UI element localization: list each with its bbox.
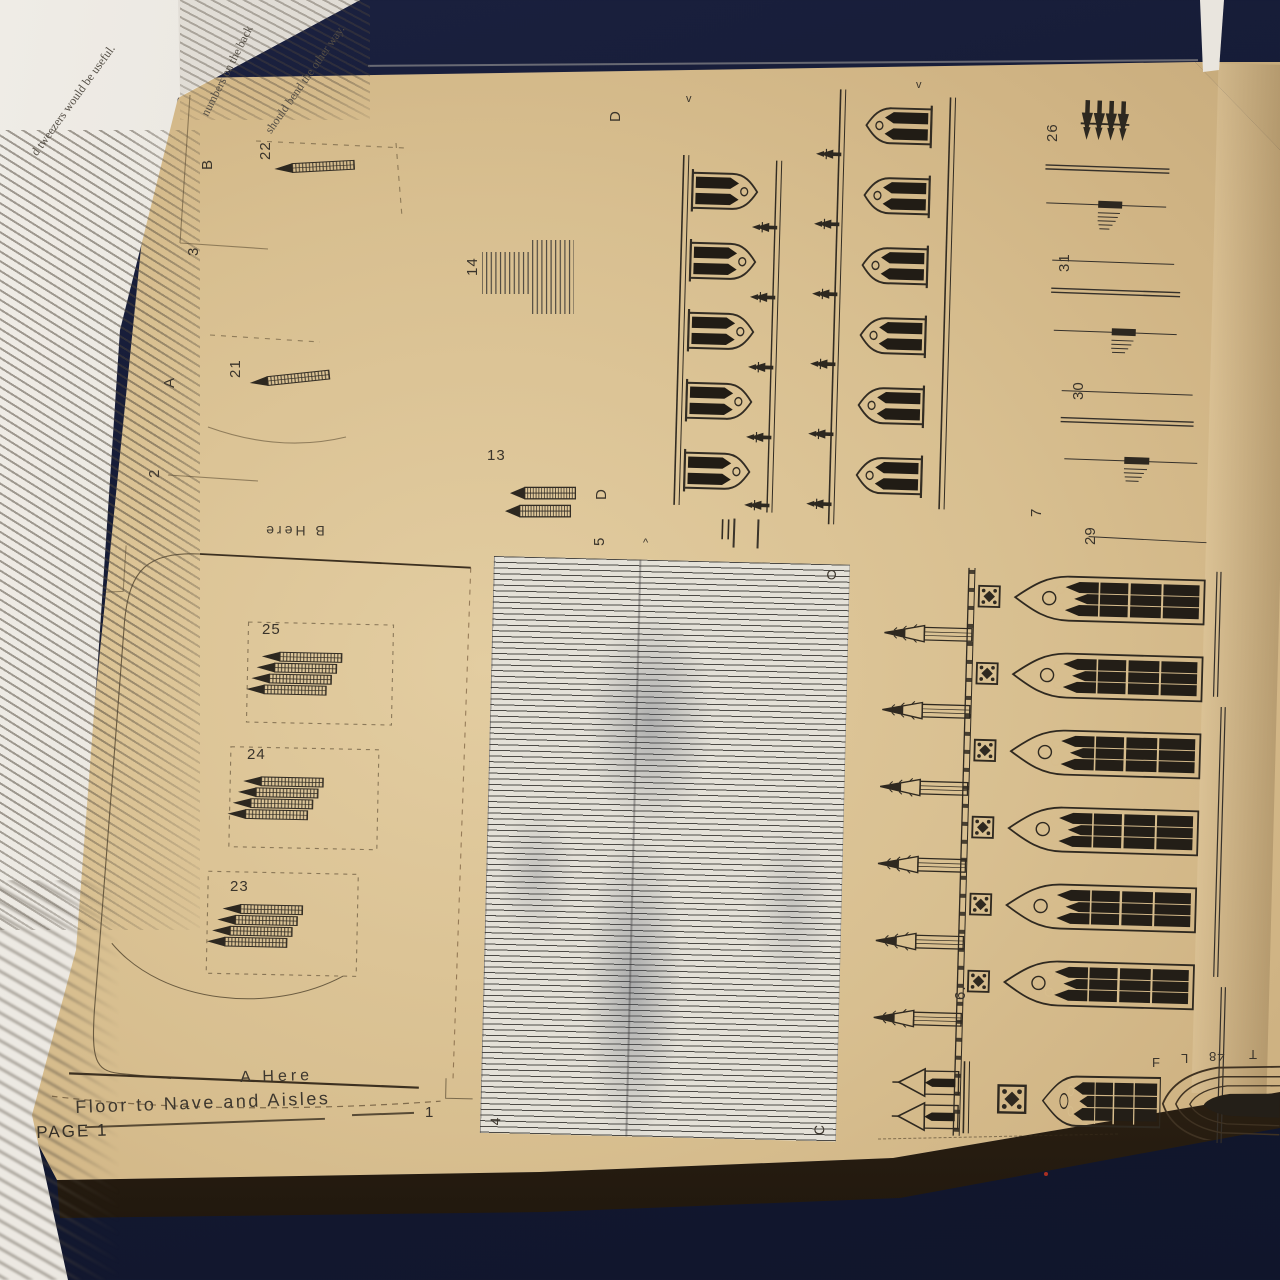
roof-piece: 4 C O (480, 556, 850, 1142)
part-label-23: 23 (230, 879, 249, 894)
part-label-d-mid: D (594, 488, 609, 500)
arrow-up-mark: ^ (643, 538, 648, 549)
portal-mark-f: F (1152, 1056, 1161, 1069)
part-label-30: 30 (1071, 381, 1086, 400)
part-label-21: 21 (228, 359, 243, 378)
arrow-down-mark: v (686, 94, 692, 105)
part-label-31: 31 (1057, 253, 1072, 272)
part-label-24: 24 (247, 747, 266, 762)
photo-of-paper-model-book: 4 C O B 22 3 21 A 2 14 13 D D 5 26 31 30… (0, 0, 1280, 1280)
part-label-c: C (812, 1124, 826, 1135)
portal-mark-t: T (1248, 1048, 1257, 1061)
portal-mark-l: L (1180, 1052, 1188, 1065)
part-label-13: 13 (487, 448, 506, 463)
part-label-22: 22 (258, 141, 273, 160)
part-label-25: 25 (262, 622, 281, 637)
part-label-7: 7 (1029, 508, 1044, 517)
part-label-5: 5 (592, 537, 607, 546)
part-label-b: B (200, 159, 215, 170)
part-label-29: 29 (1083, 526, 1098, 545)
red-speck (1044, 1172, 1048, 1176)
part-label-d-top: D (608, 110, 623, 122)
portal-mark-48: 48 (1208, 1050, 1224, 1063)
part-label-26: 26 (1045, 123, 1060, 142)
part-label-4: 4 (488, 1116, 502, 1125)
glue-mark-a-here: A Here (240, 1068, 313, 1086)
part-label-1: 1 (425, 1105, 434, 1120)
arrow-down-mark: v (916, 80, 922, 91)
part-label-6: 6. (953, 985, 968, 1000)
part-label-14: 14 (465, 257, 480, 276)
glue-mark-b-here: B Here (248, 524, 340, 538)
instruction-text-block-blurred (0, 880, 120, 1280)
instruction-text-block (0, 130, 200, 930)
small-rail-piece (733, 519, 760, 549)
part-label-o: O (826, 568, 837, 581)
